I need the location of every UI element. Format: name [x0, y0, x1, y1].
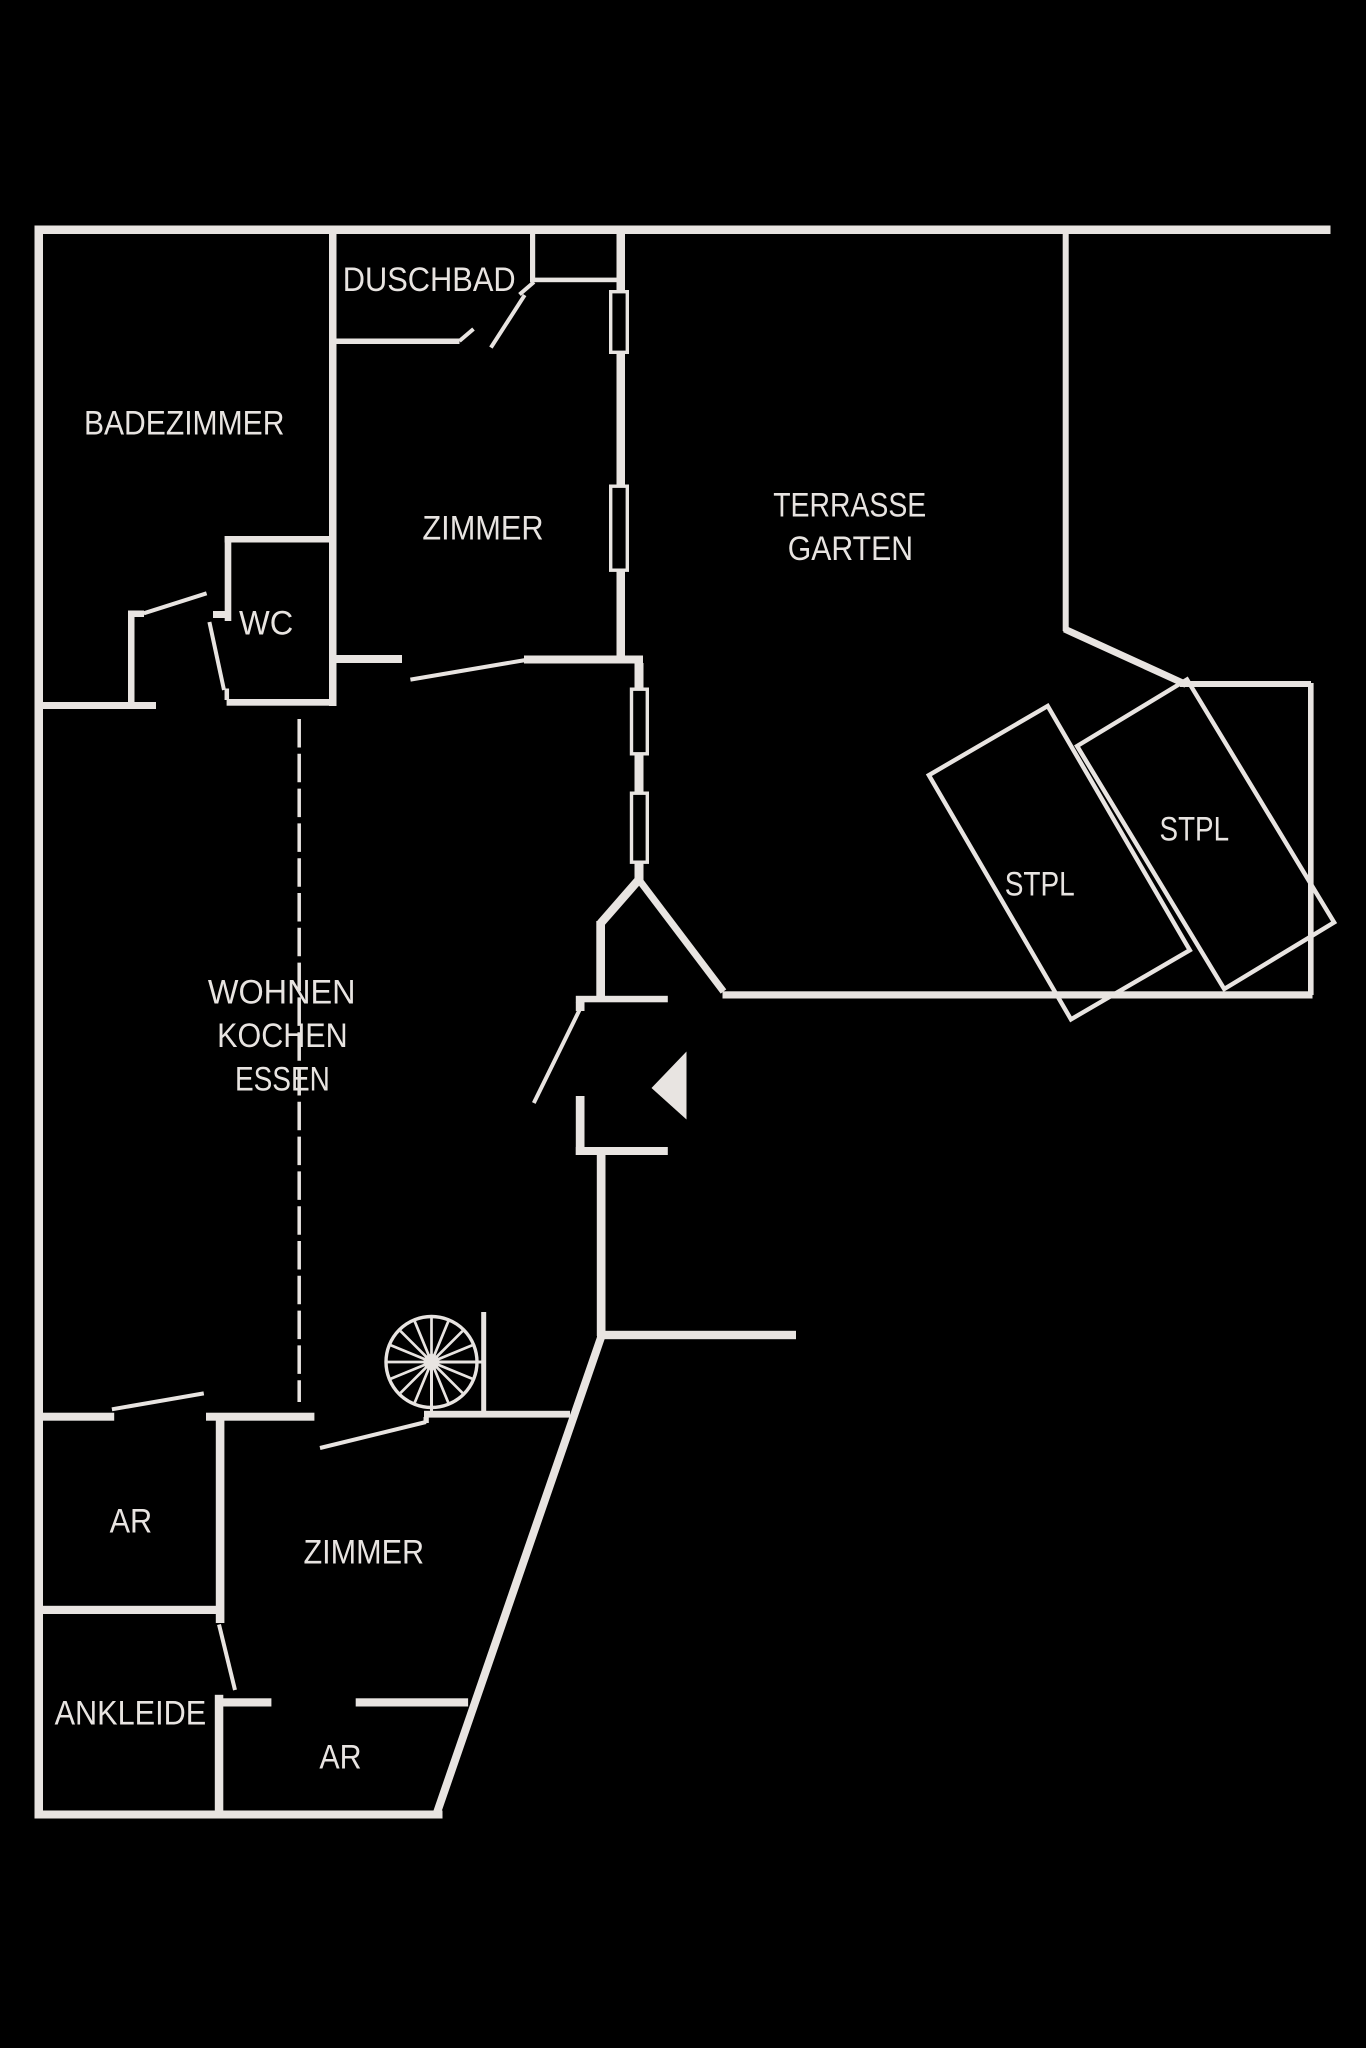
- svg-text:ZIMMER: ZIMMER: [304, 1534, 425, 1572]
- svg-text:ESSEN: ESSEN: [235, 1060, 330, 1098]
- svg-text:ANKLEIDE: ANKLEIDE: [55, 1694, 207, 1732]
- svg-text:KOCHEN: KOCHEN: [217, 1017, 348, 1055]
- svg-text:STPL: STPL: [1005, 865, 1075, 903]
- svg-text:AR: AR: [110, 1502, 153, 1540]
- svg-text:WOHNEN: WOHNEN: [208, 973, 356, 1011]
- svg-text:STPL: STPL: [1160, 811, 1230, 849]
- svg-text:DUSCHBAD: DUSCHBAD: [343, 261, 516, 299]
- svg-text:TERRASSE: TERRASSE: [773, 487, 926, 525]
- svg-text:BADEZIMMER: BADEZIMMER: [84, 405, 285, 443]
- svg-text:WC: WC: [239, 605, 293, 643]
- svg-text:GARTEN: GARTEN: [788, 530, 913, 568]
- svg-text:ZIMMER: ZIMMER: [422, 509, 543, 547]
- svg-text:AR: AR: [319, 1738, 361, 1776]
